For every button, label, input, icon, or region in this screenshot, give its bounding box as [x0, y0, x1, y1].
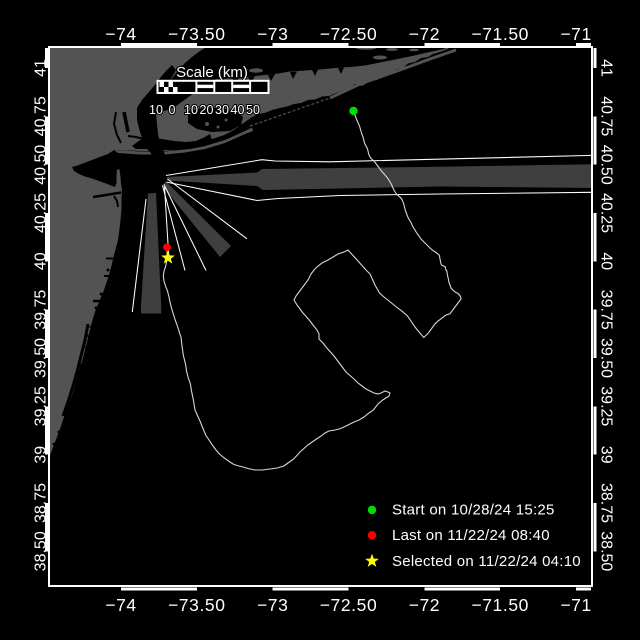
svg-text:39.25: 39.25 [33, 386, 50, 426]
svg-text:40: 40 [598, 252, 615, 270]
svg-text:50: 50 [246, 103, 260, 117]
svg-text:−72: −72 [409, 24, 441, 44]
svg-text:−73: −73 [257, 24, 289, 44]
svg-text:40.25: 40.25 [598, 193, 615, 233]
svg-text:41: 41 [598, 59, 615, 77]
svg-text:41: 41 [33, 59, 50, 77]
svg-text:39.25: 39.25 [598, 386, 615, 426]
svg-text:10: 10 [149, 103, 163, 117]
svg-text:Selected on 11/22/24 04:10: Selected on 11/22/24 04:10 [392, 553, 581, 570]
svg-text:39.75: 39.75 [598, 290, 615, 330]
svg-text:39.75: 39.75 [33, 290, 50, 330]
svg-text:38.75: 38.75 [33, 483, 50, 523]
svg-text:−73.50: −73.50 [168, 24, 226, 44]
svg-text:38.75: 38.75 [598, 483, 615, 523]
svg-text:39.50: 39.50 [598, 338, 615, 378]
svg-text:−73: −73 [257, 595, 289, 615]
svg-text:20: 20 [200, 103, 214, 117]
svg-text:−72: −72 [409, 595, 441, 615]
svg-text:−71.50: −71.50 [471, 595, 529, 615]
svg-text:−73.50: −73.50 [168, 595, 226, 615]
svg-text:−74: −74 [105, 595, 137, 615]
svg-text:39: 39 [33, 446, 50, 464]
svg-text:39.50: 39.50 [33, 338, 50, 378]
svg-text:40: 40 [231, 103, 245, 117]
svg-text:38.50: 38.50 [33, 531, 50, 571]
svg-text:38.50: 38.50 [598, 531, 615, 571]
svg-text:40: 40 [33, 252, 50, 270]
svg-text:40.75: 40.75 [598, 96, 615, 136]
svg-text:Start on 10/28/24 15:25: Start on 10/28/24 15:25 [392, 502, 555, 519]
svg-text:−71: −71 [560, 24, 592, 44]
svg-text:39: 39 [598, 446, 615, 464]
svg-text:−71: −71 [560, 595, 592, 615]
svg-text:0: 0 [169, 103, 176, 117]
svg-text:−74: −74 [105, 24, 137, 44]
svg-text:−72.50: −72.50 [320, 595, 378, 615]
svg-text:Scale (km): Scale (km) [176, 64, 248, 81]
svg-text:30: 30 [215, 103, 229, 117]
svg-text:−71.50: −71.50 [471, 24, 529, 44]
svg-text:40.50: 40.50 [33, 145, 50, 185]
svg-text:10: 10 [184, 103, 198, 117]
svg-text:Last on 11/22/24 08:40: Last on 11/22/24 08:40 [392, 527, 550, 544]
svg-text:40.25: 40.25 [33, 193, 50, 233]
svg-text:−72.50: −72.50 [320, 24, 378, 44]
svg-text:40.50: 40.50 [598, 145, 615, 185]
svg-text:40.75: 40.75 [33, 96, 50, 136]
